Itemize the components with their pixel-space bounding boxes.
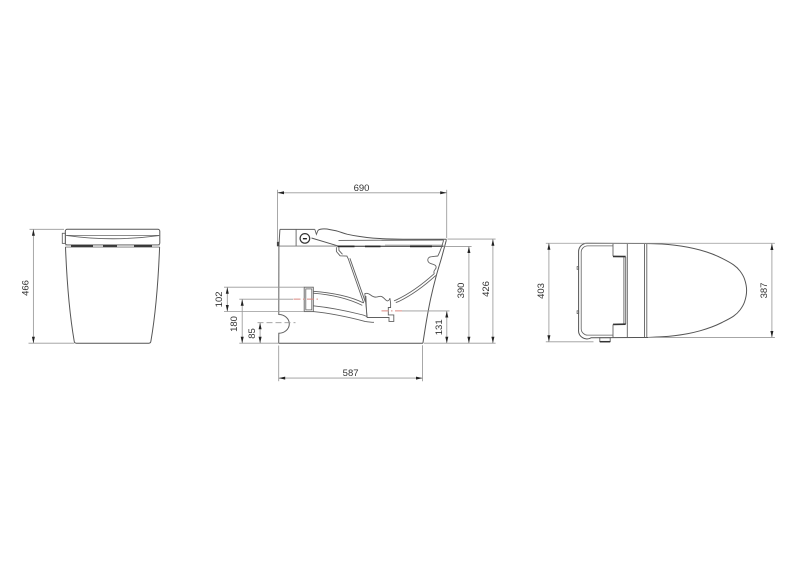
svg-text:85: 85 [247,328,258,339]
svg-text:131: 131 [434,319,445,335]
svg-text:387: 387 [759,283,770,299]
svg-text:403: 403 [536,283,547,299]
svg-text:466: 466 [20,280,31,296]
svg-text:180: 180 [229,316,240,332]
svg-text:690: 690 [354,183,370,194]
svg-text:426: 426 [481,281,492,297]
svg-text:102: 102 [214,291,225,307]
svg-text:587: 587 [343,368,359,379]
svg-text:390: 390 [456,283,467,299]
